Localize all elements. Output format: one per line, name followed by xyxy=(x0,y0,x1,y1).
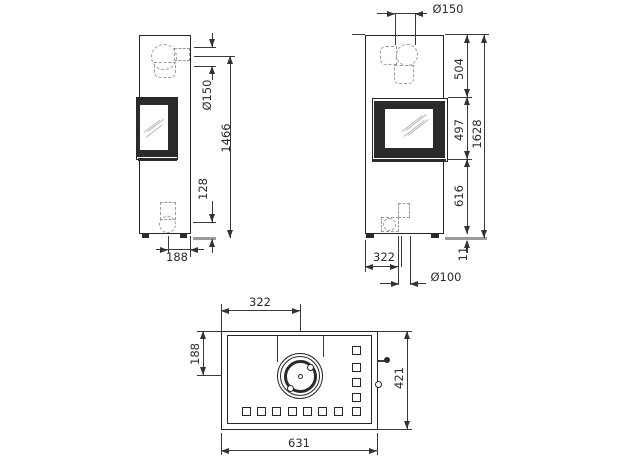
extension-line xyxy=(395,14,396,45)
convection-hole xyxy=(334,407,343,416)
arrowhead xyxy=(227,56,233,64)
center-mark xyxy=(298,374,303,379)
extension-line xyxy=(352,34,365,35)
arrowhead xyxy=(464,35,470,43)
arrowhead xyxy=(391,281,399,287)
dim-label-side-flue-dia: Ø150 xyxy=(200,73,214,117)
flue-pipe-dashed xyxy=(394,65,414,84)
arrowhead xyxy=(221,308,229,314)
arrowhead xyxy=(464,159,470,167)
outlet-pipe-dashed xyxy=(398,203,410,218)
flue-pipe-dashed xyxy=(174,48,190,61)
flue-elbow-dashed xyxy=(396,44,418,66)
extension-line xyxy=(193,222,216,223)
arrowhead xyxy=(481,35,487,43)
convection-hole xyxy=(352,363,361,372)
convection-hole xyxy=(352,407,361,416)
arrowhead xyxy=(209,214,215,222)
convection-hole xyxy=(352,346,361,355)
door-sill xyxy=(373,159,446,162)
screw xyxy=(307,364,314,371)
arrowhead xyxy=(415,11,423,17)
convection-hole xyxy=(242,407,251,416)
dim-label-front-flue-dia: Ø150 xyxy=(426,2,470,16)
arrowhead xyxy=(464,97,470,105)
arrowhead xyxy=(410,281,418,287)
dim-label-front-door-height: 497 xyxy=(452,108,466,152)
convection-hole xyxy=(352,393,361,402)
extension-line xyxy=(415,14,416,45)
foot xyxy=(431,234,439,238)
foot xyxy=(180,234,187,238)
arrowhead xyxy=(390,264,398,270)
foot xyxy=(142,234,149,238)
arrowhead xyxy=(404,331,410,339)
dim-label-side-outlet-offset: 188 xyxy=(155,250,199,264)
dim-label-top-depth: 421 xyxy=(392,356,406,400)
arrowhead xyxy=(209,39,215,47)
convection-hole xyxy=(288,407,297,416)
convection-hole xyxy=(257,407,266,416)
screw xyxy=(287,385,294,392)
convection-hole xyxy=(318,407,327,416)
flue-pipe-dashed xyxy=(154,62,176,78)
stove-technical-drawing: Ø150 1466 128 188 xyxy=(0,0,624,460)
convection-hole xyxy=(352,378,361,387)
convection-hole xyxy=(272,407,281,416)
arrowhead xyxy=(292,308,300,314)
dim-label-side-outlet-height: 128 xyxy=(196,167,210,211)
arrowhead xyxy=(227,230,233,238)
arrowhead xyxy=(404,421,410,429)
outlet-elbow-dashed xyxy=(159,216,176,233)
arrowhead xyxy=(221,448,229,454)
door-glass xyxy=(140,105,168,150)
dimension-line xyxy=(221,310,300,311)
dimension-line xyxy=(221,450,378,451)
arrowhead xyxy=(481,230,487,238)
dim-label-top-flue-offset-y: 188 xyxy=(188,332,202,376)
dim-label-front-outlet-dia: Ø100 xyxy=(424,270,468,284)
plate-seam xyxy=(323,336,324,357)
arrowhead xyxy=(365,264,373,270)
handle-knob xyxy=(384,357,390,363)
dim-label-top-flue-offset-x: 322 xyxy=(238,295,282,309)
extension-line xyxy=(377,433,378,455)
convection-hole xyxy=(303,407,312,416)
dim-label-front-outlet-offset: 322 xyxy=(362,250,406,264)
door-sill xyxy=(138,158,177,161)
extension-line xyxy=(378,429,412,430)
dimension-line xyxy=(484,35,485,238)
dimension-line xyxy=(407,331,408,429)
dim-label-front-total-height: 1628 xyxy=(470,112,484,156)
extension-line xyxy=(300,304,301,331)
plate-seam xyxy=(277,336,278,362)
arrowhead xyxy=(209,239,215,247)
dimension-line xyxy=(467,35,468,234)
dim-label-front-lower-section: 616 xyxy=(452,174,466,218)
latch-hook xyxy=(375,381,382,388)
dim-label-front-top-section: 504 xyxy=(452,47,466,91)
flue-pipe-dashed xyxy=(380,46,397,65)
outlet-elbow-dashed xyxy=(383,218,396,231)
foot xyxy=(366,234,374,238)
extension-line xyxy=(194,47,216,48)
arrowhead xyxy=(369,448,377,454)
dim-label-side-height: 1466 xyxy=(219,116,233,160)
arrowhead xyxy=(387,11,395,17)
extension-line xyxy=(410,236,411,285)
dim-label-top-width: 631 xyxy=(277,436,321,450)
